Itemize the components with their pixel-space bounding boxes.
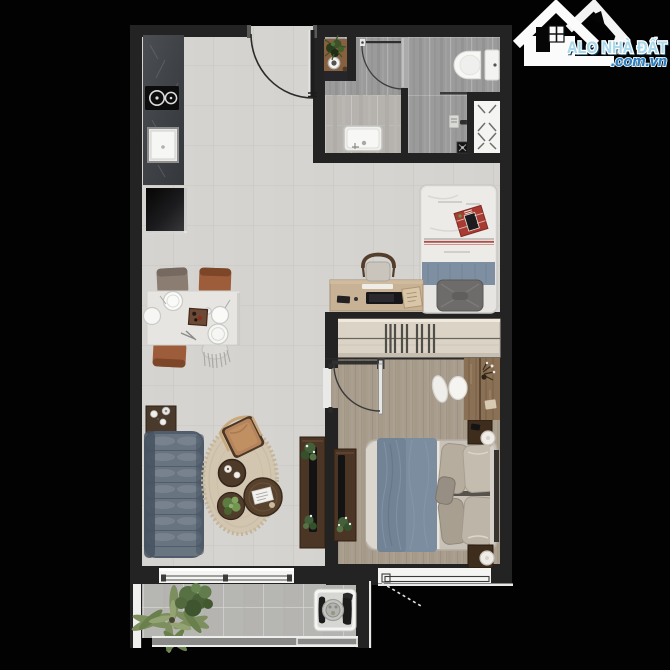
svg-text:.com.vn: .com.vn bbox=[611, 54, 667, 70]
